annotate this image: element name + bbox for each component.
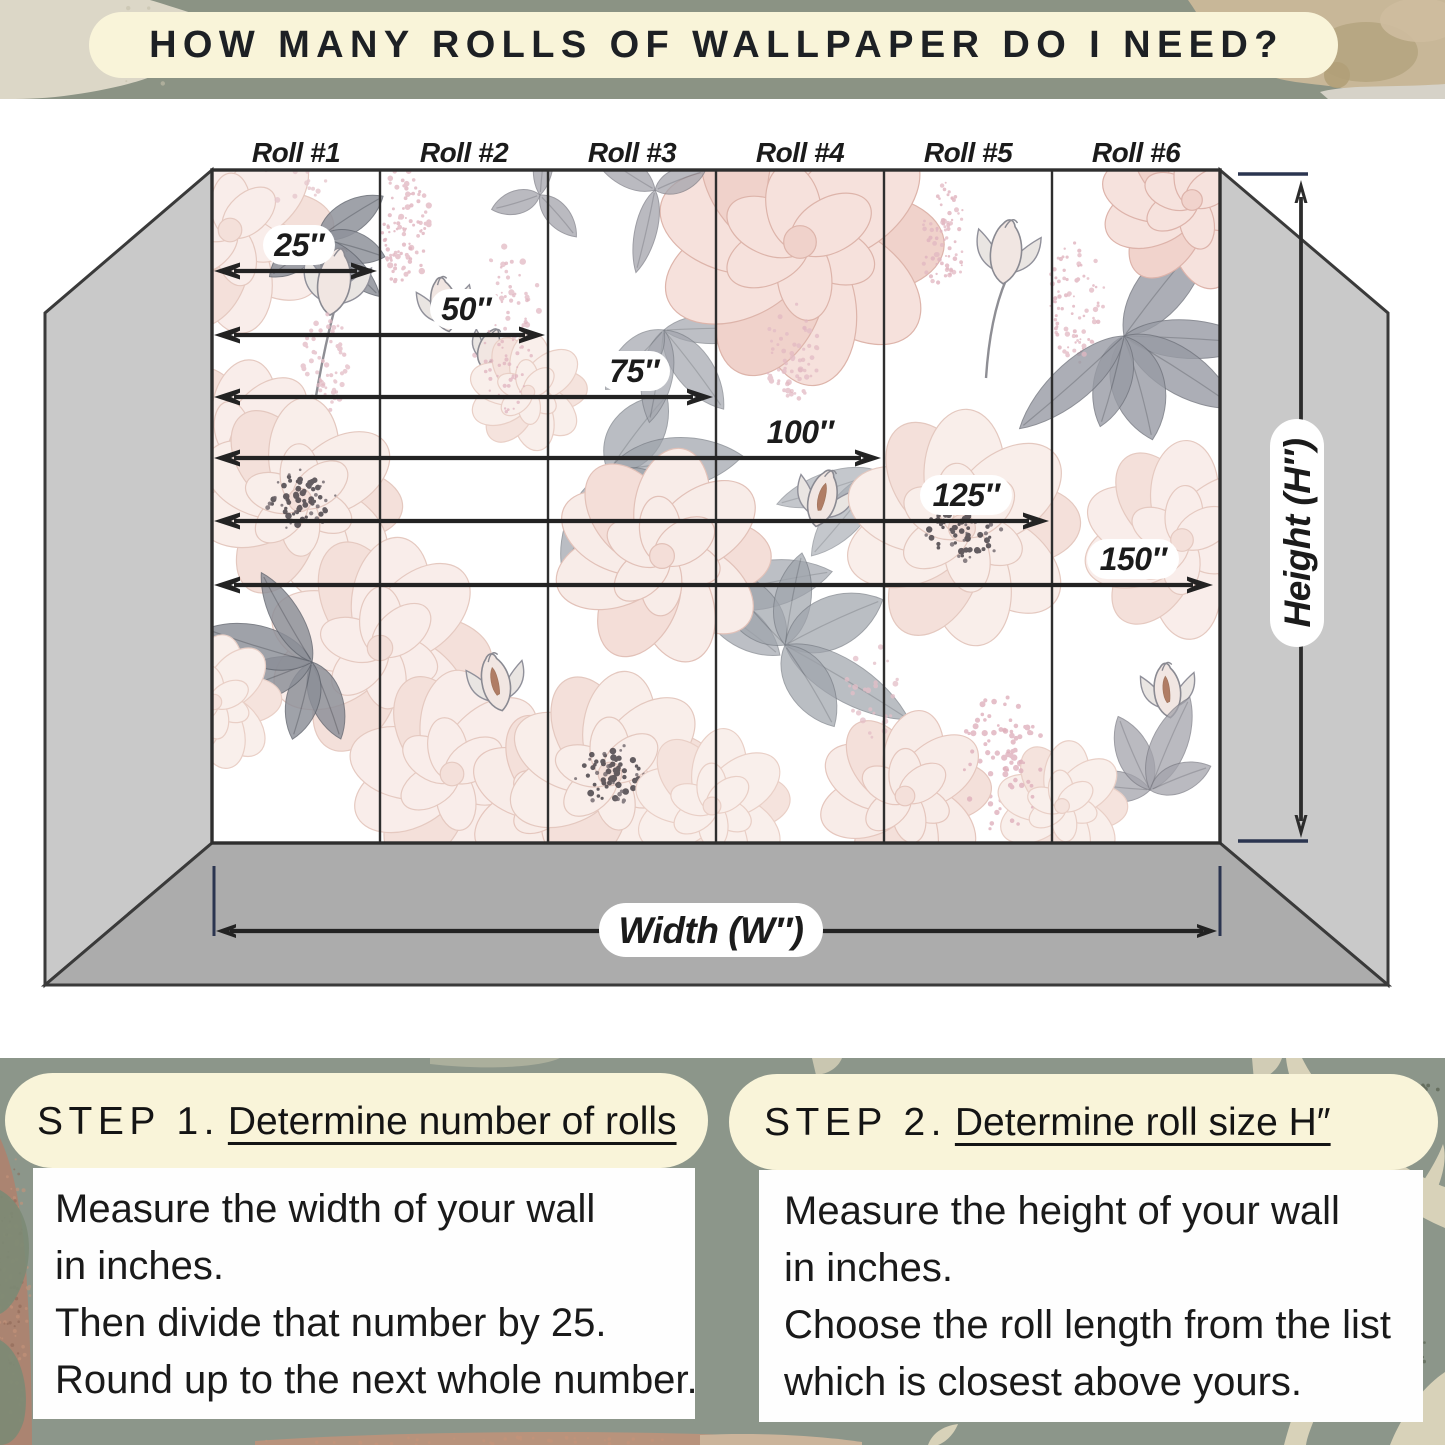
svg-text:Roll #5: Roll #5: [924, 137, 1013, 168]
svg-text:50″: 50″: [441, 291, 493, 327]
svg-text:Width (W″): Width (W″): [619, 910, 804, 951]
svg-text:Roll #1: Roll #1: [252, 137, 340, 168]
svg-text:125″: 125″: [933, 477, 1002, 513]
svg-text:Height (H″): Height (H″): [1277, 438, 1318, 627]
svg-text:25″: 25″: [273, 227, 326, 263]
svg-text:100″: 100″: [767, 414, 836, 450]
svg-text:Roll #2: Roll #2: [420, 137, 509, 168]
svg-text:Roll #4: Roll #4: [756, 137, 845, 168]
svg-text:Roll #6: Roll #6: [1092, 137, 1181, 168]
svg-text:Roll #3: Roll #3: [588, 137, 677, 168]
svg-text:75″: 75″: [609, 353, 661, 389]
svg-text:150″: 150″: [1100, 541, 1169, 577]
